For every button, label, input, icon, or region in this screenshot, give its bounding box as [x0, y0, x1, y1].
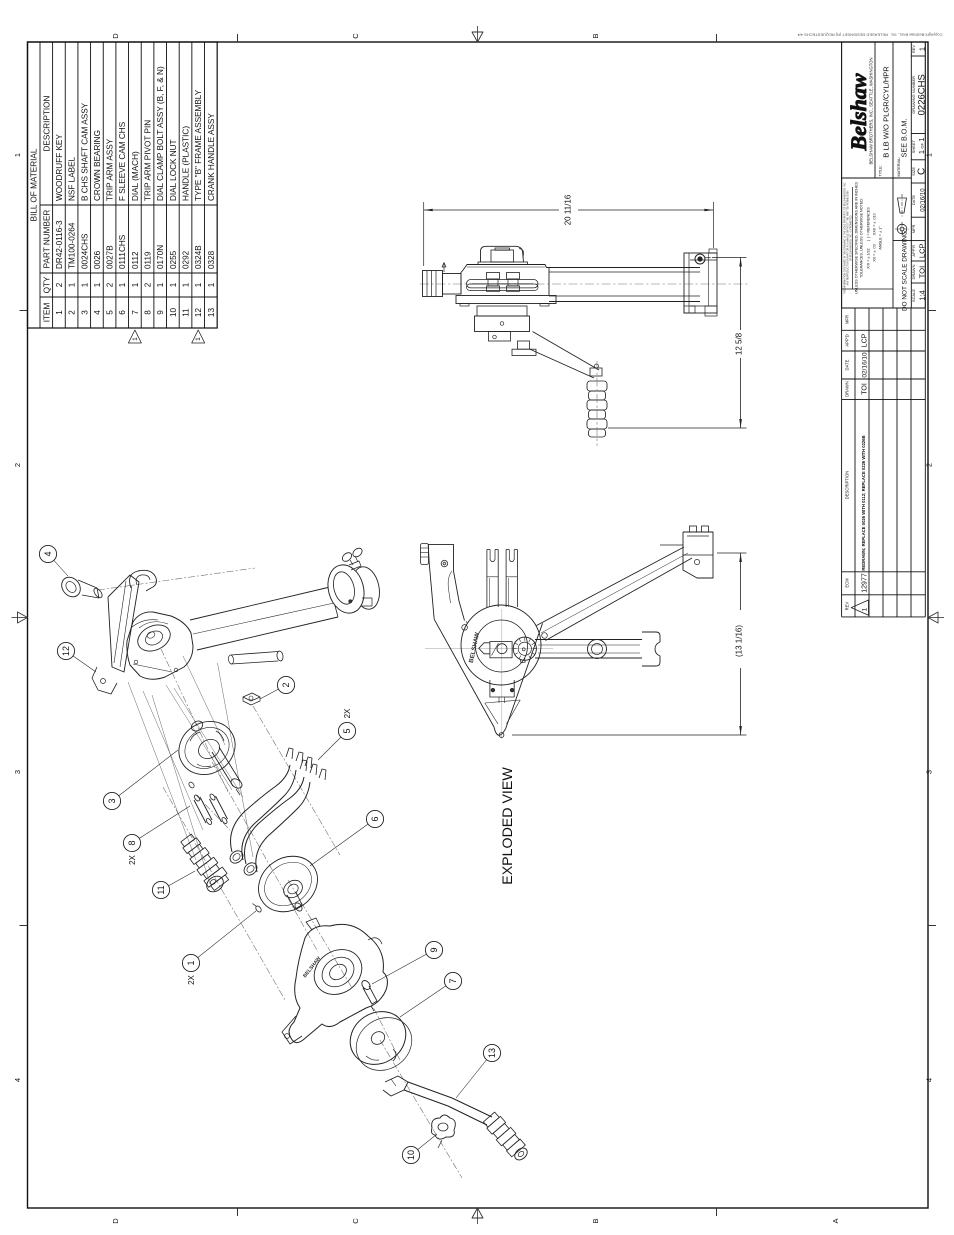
svg-text:7: 7	[131, 310, 140, 315]
svg-text:12 5/8: 12 5/8	[735, 332, 744, 355]
svg-text:1: 1	[917, 150, 926, 154]
svg-text:SHEET: SHEET	[911, 139, 916, 153]
svg-text:2: 2	[55, 282, 64, 287]
svg-text:4: 4	[43, 551, 53, 556]
svg-text:LCP: LCP	[862, 333, 869, 347]
svg-text:DR42-0116-3: DR42-0116-3	[55, 220, 64, 269]
svg-text:BELSHAW BROTHERS, INC., SEATTL: BELSHAW BROTHERS, INC., SEATTLE, WASHING…	[869, 57, 874, 164]
svg-text:6: 6	[118, 310, 127, 315]
svg-text:0292: 0292	[182, 250, 191, 269]
svg-text:DO NOT SCALE DRAWING: DO NOT SCALE DRAWING	[902, 231, 909, 311]
svg-text:2X: 2X	[187, 974, 196, 984]
svg-text:(13 1/16): (13 1/16)	[735, 625, 744, 657]
svg-text:X/X = ± 1/32 ( ) = REFE: X/X = ± 1/32 ( ) = REFERENCES	[867, 207, 871, 269]
svg-text:1: 1	[156, 282, 165, 287]
svg-text:D: D	[111, 33, 120, 39]
svg-text:OF: OF	[920, 142, 925, 148]
svg-text:C: C	[351, 1218, 360, 1224]
svg-text:DRAWING NUMBER: DRAWING NUMBER	[911, 76, 916, 114]
svg-text:0112: 0112	[131, 251, 140, 269]
svg-text:1: 1	[55, 310, 64, 315]
svg-text:THE INFORMATION CONTAINED IN T: THE INFORMATION CONTAINED IN THIS DRAWIN…	[844, 182, 847, 294]
svg-text:.XX = ± .03 .XXX = ± .0: .XX = ± .03 .XXX = ± .010	[873, 213, 877, 262]
svg-text:DESCRIPTION: DESCRIPTION	[845, 471, 850, 500]
svg-text:DESCRIPTION: DESCRIPTION	[42, 95, 51, 151]
svg-text:10: 10	[169, 308, 178, 318]
svg-text:13: 13	[487, 1048, 497, 1058]
svg-text:SIZE: SIZE	[911, 167, 916, 176]
svg-text:3: 3	[107, 798, 117, 803]
svg-text:02/16/10: 02/16/10	[921, 188, 927, 212]
svg-text:C: C	[917, 168, 928, 175]
svg-text:B CHS SHAFT CAM ASSY: B CHS SHAFT CAM ASSY	[80, 102, 89, 201]
svg-text:0328: 0328	[207, 250, 216, 269]
svg-text:2: 2	[13, 463, 22, 467]
svg-text:CROWN BEARING: CROWN BEARING	[93, 130, 102, 201]
svg-text:11: 11	[182, 308, 191, 317]
svg-text:1: 1	[194, 282, 203, 287]
svg-text:5: 5	[106, 310, 115, 315]
svg-text:1: 1	[186, 960, 196, 965]
svg-text:8: 8	[127, 840, 137, 845]
svg-text:1: 1	[93, 282, 102, 287]
svg-text:2: 2	[144, 282, 153, 287]
svg-text:0226CHS: 0226CHS	[917, 74, 928, 115]
svg-text:B: B	[591, 33, 600, 38]
svg-text:7: 7	[448, 978, 458, 983]
svg-text:1: 1	[132, 337, 139, 341]
svg-text:UNLESS OTHERWISE SPECIFIED, DI: UNLESS OTHERWISE SPECIFIED, DIMENSIONS A…	[855, 181, 859, 294]
svg-text:2: 2	[106, 282, 115, 287]
svg-text:REV: REV	[845, 601, 850, 610]
svg-text:DATE: DATE	[911, 195, 916, 206]
svg-text:2X: 2X	[128, 854, 137, 864]
svg-text:TOI: TOI	[862, 383, 869, 395]
svg-text:F SLEEVE CAM CHS: F SLEEVE CAM CHS	[118, 121, 127, 201]
svg-text:4: 4	[925, 1078, 934, 1082]
svg-text:NSF LABEL: NSF LABEL	[68, 156, 77, 201]
svg-text:CRANK HANDLE ASSY: CRANK HANDLE ASSY	[207, 113, 216, 201]
svg-text:9: 9	[429, 947, 439, 952]
svg-text:DRAWN: DRAWN	[911, 264, 916, 279]
svg-text:02/16/10: 02/16/10	[862, 352, 869, 378]
svg-text:WOODRUFF KEY: WOODRUFF KEY	[55, 134, 64, 201]
svg-text:MFR: MFR	[845, 315, 850, 324]
svg-text:TM100-0264: TM100-0264	[68, 222, 77, 269]
svg-text:A: A	[831, 1218, 840, 1223]
svg-text:BILL OF MATERIAL: BILL OF MATERIAL	[29, 148, 38, 221]
svg-text:D: D	[111, 1218, 120, 1224]
svg-text:0119: 0119	[144, 251, 153, 269]
svg-text:8: 8	[144, 310, 153, 315]
svg-text:DIAL LOCK NUT: DIAL LOCK NUT	[169, 139, 178, 201]
svg-text:1: 1	[182, 282, 191, 287]
svg-text:1: 1	[195, 337, 202, 341]
svg-text:ANGLE = ± 1°: ANGLE = ± 1°	[879, 226, 883, 250]
svg-text:LCP: LCP	[918, 244, 927, 259]
svg-text:TOLERANCES, UNLESS OTHERWISE N: TOLERANCES, UNLESS OTHERWISE NOTED:	[860, 198, 864, 278]
svg-text:ITEM: ITEM	[42, 303, 51, 323]
svg-text:OF BELSHAW BROS. INC. IS PROHI: OF BELSHAW BROS. INC. IS PROHIBITED.	[850, 215, 853, 261]
svg-text:1: 1	[917, 137, 926, 141]
svg-text:APP'D: APP'D	[845, 334, 850, 346]
svg-text:TRIP ARM PIVOT PIN: TRIP ARM PIVOT PIN	[144, 120, 153, 201]
svg-text:TRIP ARM ASSY: TRIP ARM ASSY	[106, 138, 115, 201]
svg-text:REV: REV	[911, 45, 916, 54]
svg-text:DRAWN: DRAWN	[845, 381, 850, 397]
svg-text:2: 2	[281, 682, 291, 687]
svg-text:1: 1	[169, 282, 178, 287]
svg-text:1: 1	[118, 282, 127, 287]
svg-text:APP'R: APP'R	[911, 245, 916, 257]
svg-text:0170N: 0170N	[156, 245, 165, 269]
svg-text:3: 3	[80, 310, 89, 315]
svg-text:1: 1	[918, 47, 927, 51]
svg-text:MATERIAL:: MATERIAL:	[897, 157, 901, 177]
svg-text:5: 5	[342, 728, 352, 733]
svg-text:10: 10	[406, 1150, 416, 1160]
svg-text:TITLE:: TITLE:	[879, 165, 883, 176]
svg-text:12: 12	[61, 646, 71, 656]
svg-text:3: 3	[13, 770, 22, 774]
svg-text:0024CHS: 0024CHS	[80, 233, 89, 269]
svg-text:1: 1	[207, 282, 216, 287]
svg-text:1: 1	[131, 282, 140, 287]
svg-text:13: 13	[207, 308, 216, 318]
svg-text:1:4: 1:4	[918, 290, 927, 300]
svg-text:2X: 2X	[343, 708, 352, 718]
svg-text:B LB W/O PLGR/CYL/HPR: B LB W/O PLGR/CYL/HPR	[882, 66, 891, 158]
svg-text:9: 9	[156, 310, 165, 315]
svg-text:2: 2	[68, 310, 77, 315]
svg-text:TOI: TOI	[918, 266, 927, 278]
svg-text:DIAL (MACH): DIAL (MACH)	[131, 151, 140, 201]
svg-text:B: B	[591, 1218, 600, 1223]
svg-text:MFR: MFR	[911, 224, 916, 233]
svg-text:4: 4	[93, 310, 102, 315]
svg-text:TYPE "B" FRAME ASSEMBLY: TYPE "B" FRAME ASSEMBLY	[194, 89, 203, 201]
svg-text:QTY: QTY	[42, 276, 51, 293]
svg-text:6: 6	[370, 816, 380, 821]
svg-text:HANDLE (PLASTIC): HANDLE (PLASTIC)	[182, 126, 191, 201]
svg-text:ANY REPRODUCTION IN PART OR AS: ANY REPRODUCTION IN PART OR AS A WHOLE W…	[847, 190, 850, 285]
svg-text:DIAL CLAMP BOLT ASSY (B, F, &: DIAL CLAMP BOLT ASSY (B, F, & N)	[156, 66, 165, 201]
svg-text:12977: 12977	[862, 573, 869, 593]
svg-text:PART NUMBER: PART NUMBER	[42, 210, 51, 269]
svg-text:0111CHS: 0111CHS	[118, 234, 127, 269]
svg-text:SEE B.O.M.: SEE B.O.M.	[900, 119, 909, 158]
svg-text:SCALE: SCALE	[911, 289, 916, 302]
svg-text:0026: 0026	[93, 250, 102, 269]
svg-text:Belshaw: Belshaw	[846, 73, 871, 151]
svg-text:EXPLODED VIEW: EXPLODED VIEW	[500, 767, 516, 885]
svg-text:C: C	[351, 33, 360, 39]
svg-text:1: 1	[862, 607, 869, 611]
svg-text:0255: 0255	[169, 250, 178, 269]
svg-text:0027B: 0027B	[106, 245, 115, 269]
svg-text:DATE: DATE	[845, 359, 850, 370]
svg-text:3: 3	[925, 770, 934, 774]
svg-text:12: 12	[194, 308, 203, 318]
svg-text:Copyright Belshaw Bros., Inc.: Copyright Belshaw Bros., Inc. RELEASED D…	[797, 33, 943, 38]
svg-text:0324B: 0324B	[194, 245, 203, 269]
svg-text:11: 11	[156, 885, 166, 894]
svg-text:2: 2	[925, 463, 934, 467]
svg-text:1: 1	[13, 153, 22, 157]
svg-text:1: 1	[68, 282, 77, 287]
svg-text:20 11/16: 20 11/16	[564, 194, 573, 225]
svg-text:4: 4	[13, 1078, 22, 1082]
svg-text:REDRAWN; REPLACE 0026 WITH 011: REDRAWN; REPLACE 0026 WITH 0112; REPLACE…	[861, 435, 866, 570]
svg-text:1: 1	[80, 282, 89, 287]
svg-text:ECM: ECM	[845, 578, 850, 588]
